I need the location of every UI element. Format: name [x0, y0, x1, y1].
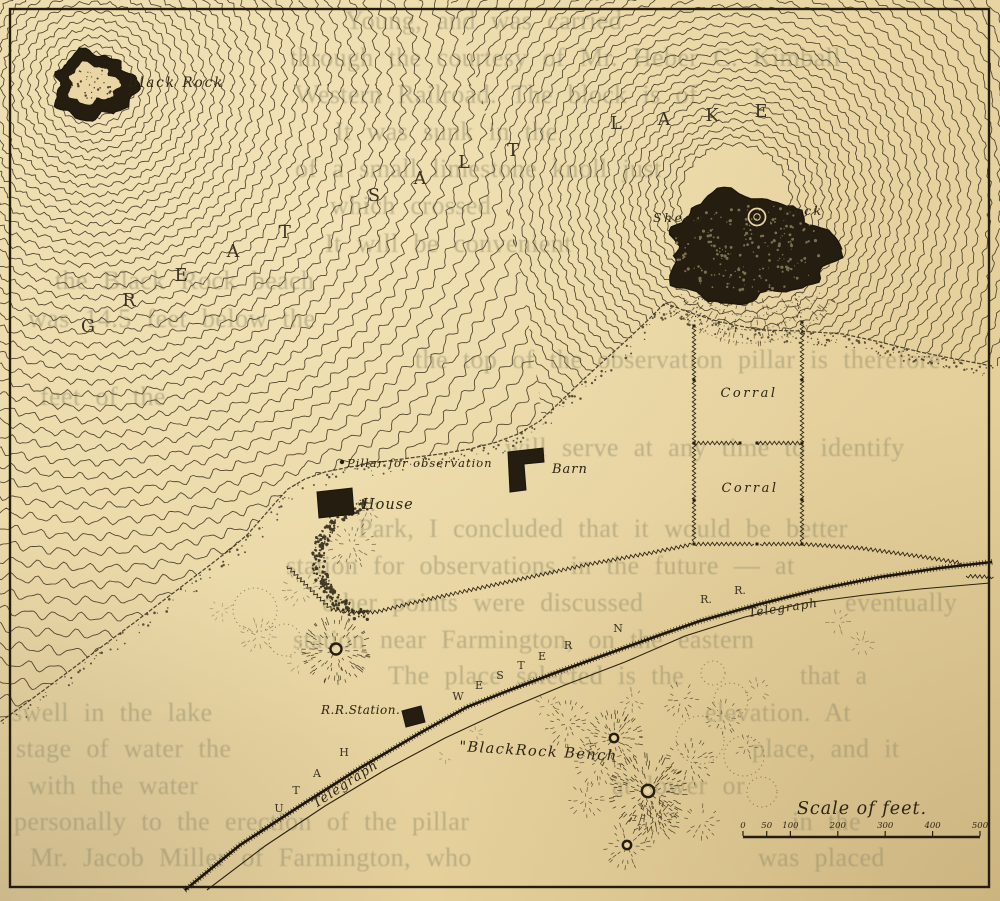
- railroad-name-letter: E: [538, 650, 546, 663]
- scale-tick-label: 100: [782, 821, 799, 831]
- buildings: [317, 448, 544, 727]
- lake-name-letter: T: [507, 141, 519, 161]
- railroad-name-letter: R.: [734, 584, 746, 597]
- railroad-name-letter: A: [312, 767, 322, 780]
- railroad-name-letter: S: [496, 669, 504, 682]
- scanned-map-page: Young, and was carriedthrough the courte…: [0, 0, 1000, 901]
- scale-tick-label: 50: [761, 821, 772, 831]
- scale-tick-label: 400: [923, 821, 941, 831]
- barn-label: Barn: [551, 462, 588, 477]
- railroad-track: [183, 559, 992, 892]
- pillar-observation-label: Pillar for observation: [346, 456, 493, 470]
- railroad-name-letter: E: [475, 679, 483, 692]
- scale-tick-label: 500: [972, 821, 989, 831]
- scale-tick-label: 300: [877, 821, 894, 831]
- map-drawing: GREATSALTLAKE UTAHWESTERNR.R. Black Rock…: [0, 0, 1000, 901]
- house-label: House: [361, 497, 414, 513]
- lake-name-letter: G: [81, 317, 95, 337]
- sheep-rock-label-left: Sheep: [653, 210, 705, 225]
- lake-name-letter: E: [755, 102, 768, 122]
- lake-name-letter: A: [226, 242, 240, 262]
- fence-and-corral-lines: [287, 294, 994, 615]
- scale-bar: Scale of feet. 050100200300400500: [740, 799, 988, 837]
- railroad-name-letter: T: [292, 784, 300, 797]
- terrain-mound-hachures: [210, 497, 875, 870]
- lake-name-letter: A: [413, 169, 427, 189]
- railroad-name-letter: R.: [700, 593, 712, 606]
- lake-name-letter: K: [705, 106, 719, 126]
- railroad-name-letter: N: [613, 622, 623, 635]
- lake-name-letter: R: [122, 291, 136, 311]
- black-rock-bench-label: "BlackRock Bench: [459, 739, 618, 765]
- scale-tick-label: 200: [829, 821, 847, 831]
- railroad-name-letter: T: [517, 659, 525, 672]
- lake-water-contours: [0, 0, 1000, 768]
- lake-name-letter: L: [458, 153, 470, 173]
- rr-station-label: R.R.Station.: [320, 703, 400, 717]
- lake-name-letter: S: [368, 186, 380, 206]
- black-rock-label: Black Rock: [127, 75, 224, 91]
- railroad-name-letter: U: [274, 802, 283, 815]
- telegraph-wire: [207, 583, 990, 890]
- lake-name-letter: L: [610, 114, 622, 134]
- sheep-rock-label-right: Rock: [781, 203, 824, 218]
- railroad-name-letter: W: [452, 690, 464, 703]
- corral-lower-label: Corral: [721, 481, 778, 496]
- scale-tick-label: 0: [740, 821, 746, 831]
- railroad-name-letter: R: [564, 639, 573, 652]
- railroad-name-letter: H: [339, 746, 349, 759]
- corral-upper-label: Corral: [720, 386, 777, 401]
- telegraph-label-lower: Telegraph: [310, 758, 381, 812]
- scale-title: Scale of feet.: [797, 799, 927, 819]
- lake-name-letter: A: [657, 110, 671, 130]
- lake-name-letter: T: [279, 223, 291, 243]
- lake-name-letter: E: [175, 266, 188, 286]
